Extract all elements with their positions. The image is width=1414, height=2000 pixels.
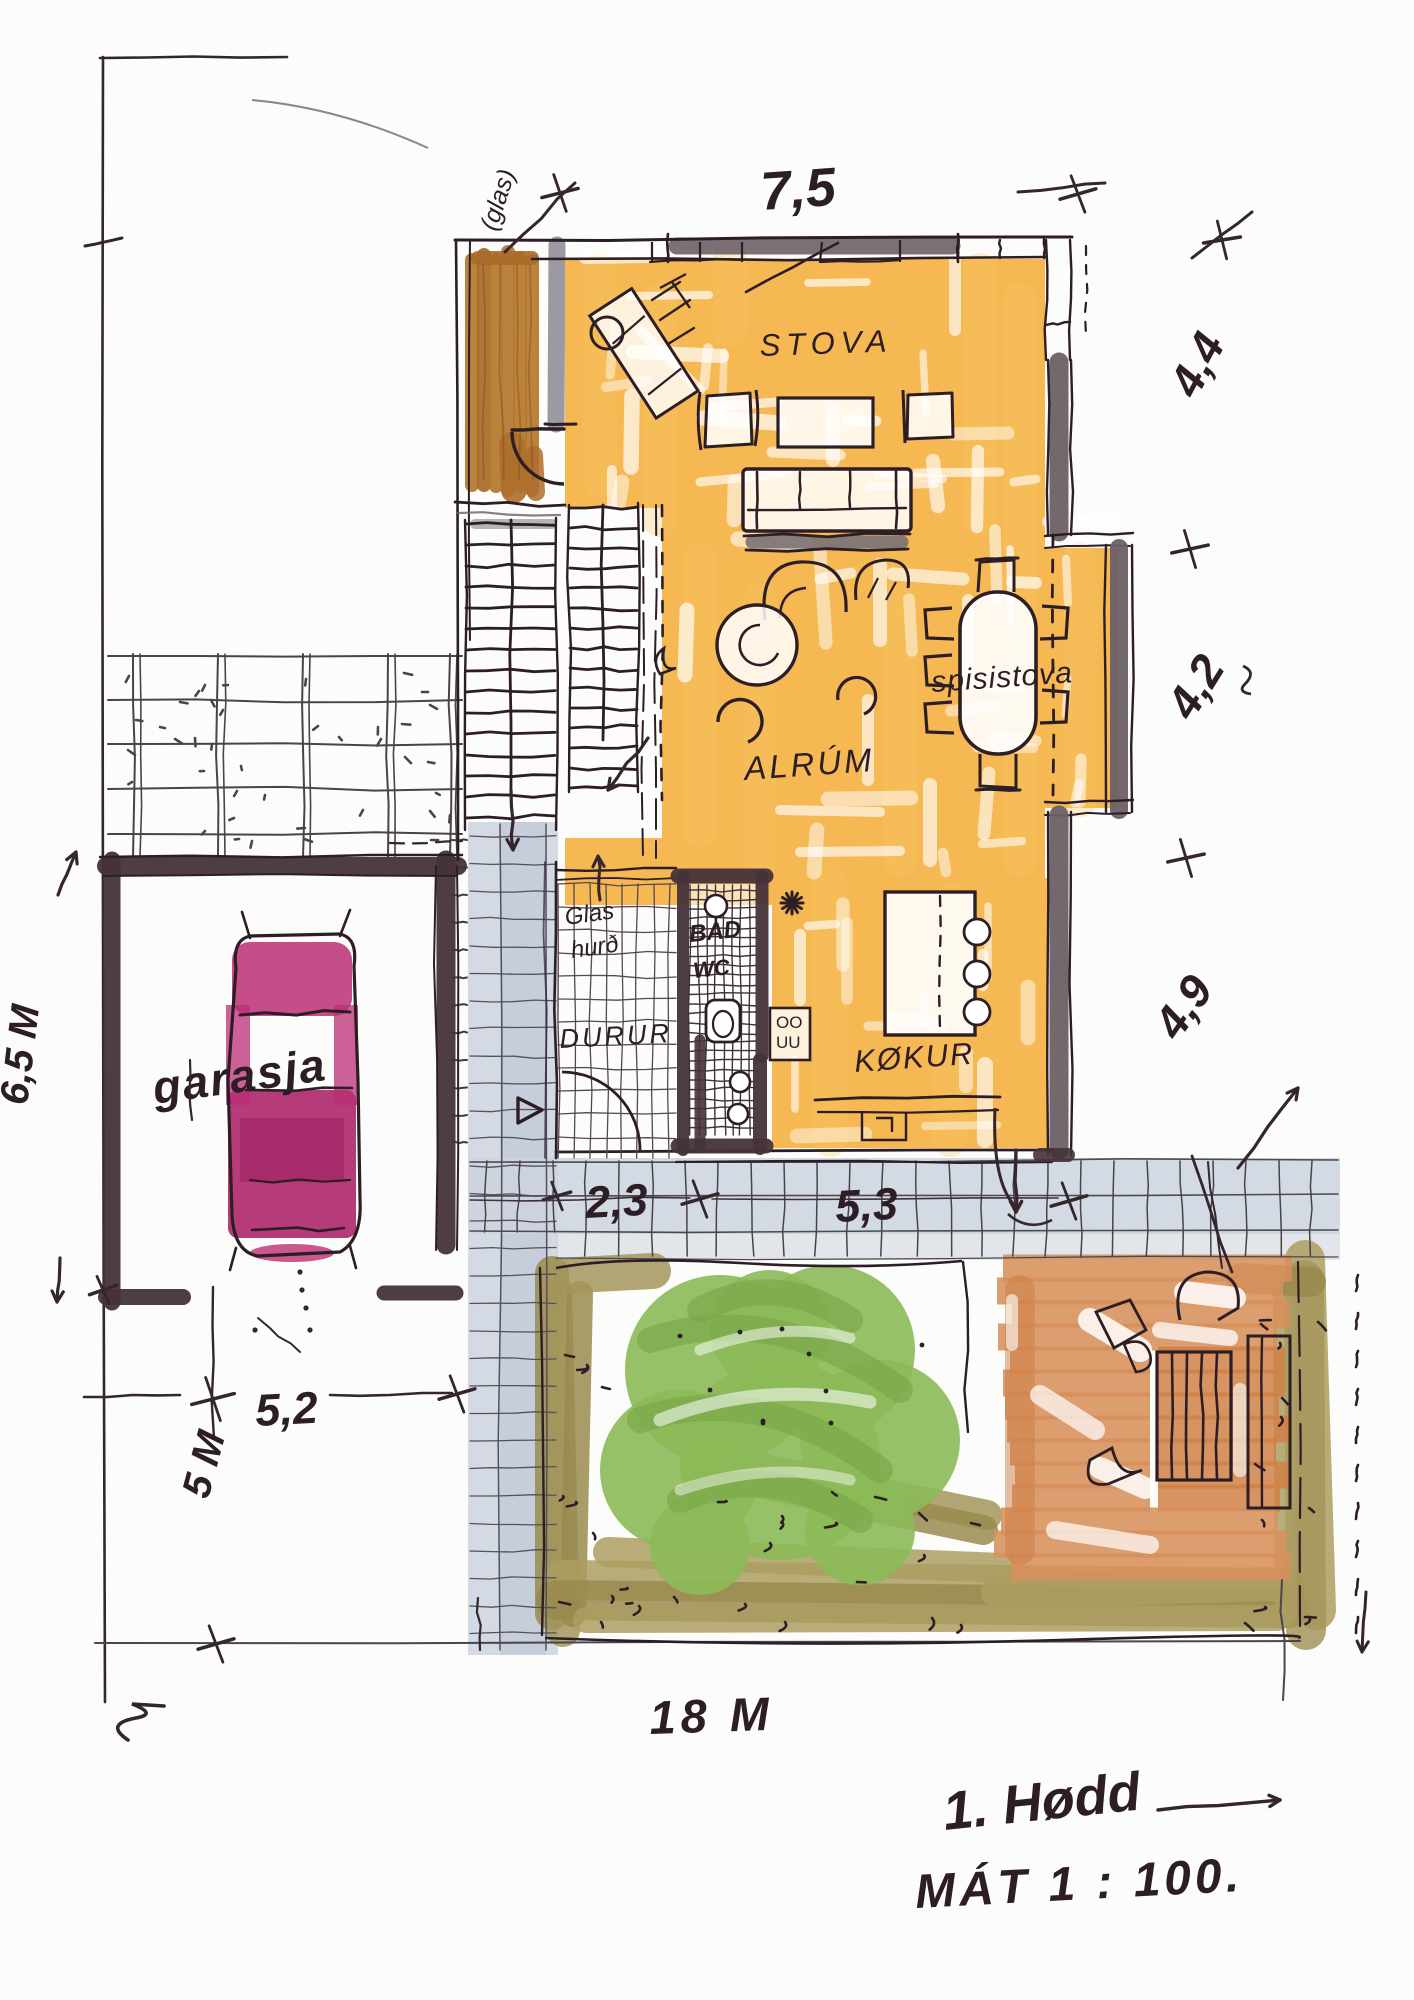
svg-text:WC: WC [692, 954, 732, 983]
svg-text:7,5: 7,5 [759, 157, 839, 222]
svg-text:BAD: BAD [688, 916, 743, 948]
svg-text:18 M: 18 M [648, 1687, 774, 1744]
svg-text:DURUR: DURUR [559, 1018, 673, 1054]
svg-text:OO: OO [776, 1013, 802, 1032]
svg-text:5,2: 5,2 [254, 1382, 319, 1436]
svg-text:5,3: 5,3 [834, 1178, 899, 1232]
svg-text:2,3: 2,3 [583, 1174, 649, 1228]
svg-text:UU: UU [776, 1033, 801, 1052]
svg-text:STOVA: STOVA [759, 323, 893, 363]
